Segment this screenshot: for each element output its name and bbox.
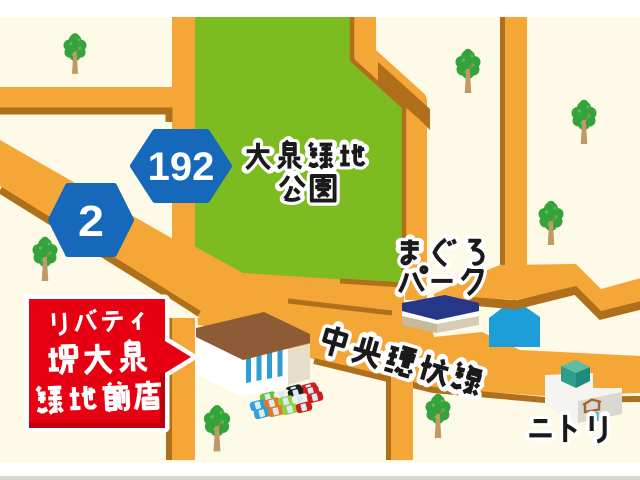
svg-text:192: 192 [148, 145, 215, 189]
svg-text:2: 2 [78, 197, 104, 246]
